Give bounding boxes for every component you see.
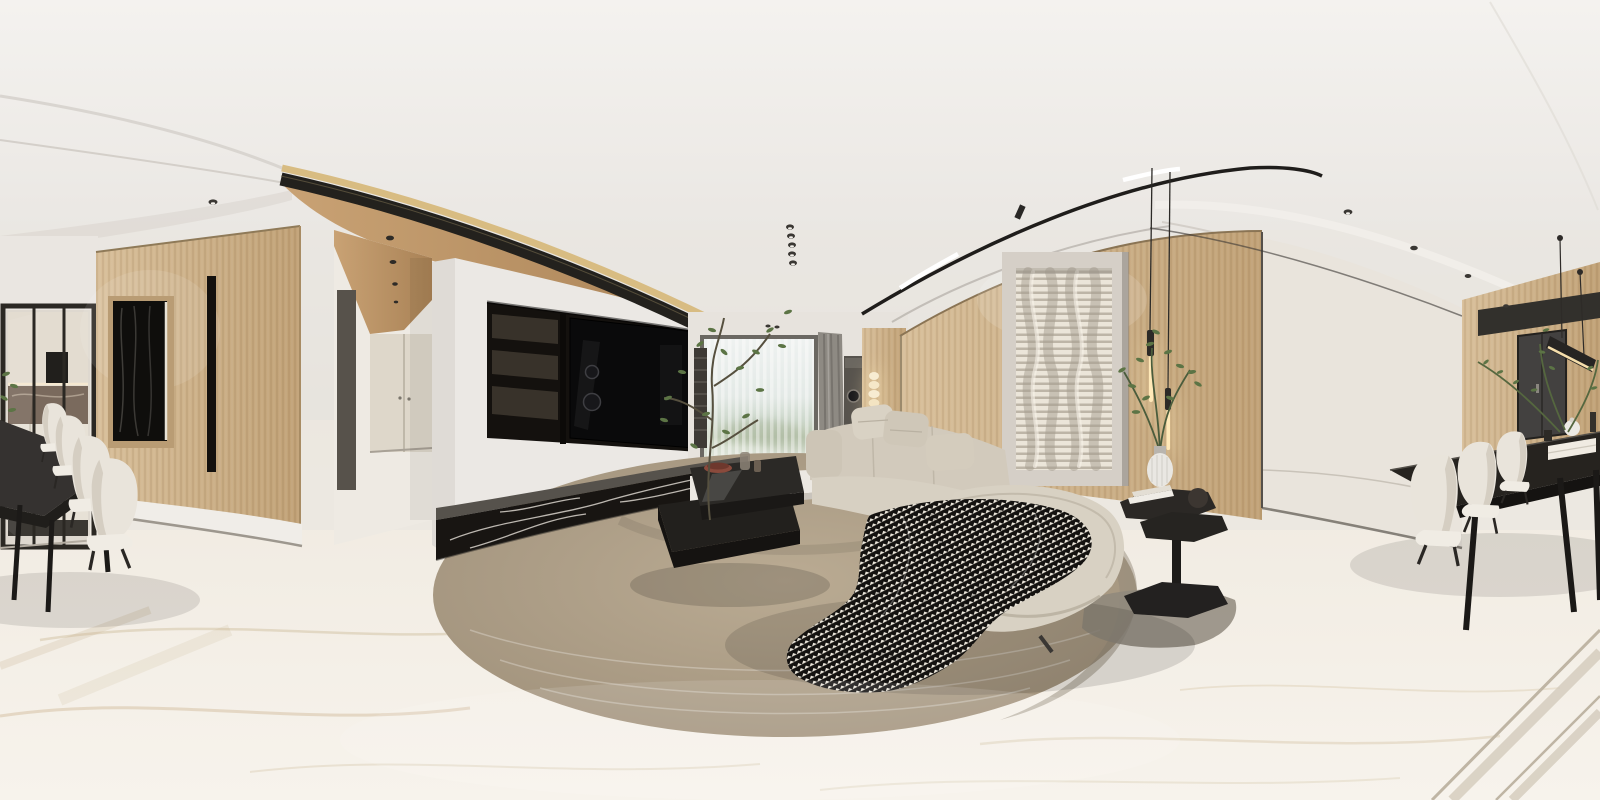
wavy-acoustic-art [1002, 252, 1129, 486]
hallway-corridor [334, 230, 432, 545]
radiator-screen [694, 348, 707, 448]
washer-reflection [586, 366, 599, 379]
sheer-curtain [704, 339, 814, 468]
floor-sheen [340, 680, 1180, 800]
panorama-360-living-room: 360-degree living and dining room panora… [0, 0, 1600, 800]
black-abstract-art [113, 301, 167, 441]
tv-screen [570, 318, 694, 448]
hall-dark-panel [337, 290, 356, 490]
decor-sphere [1188, 488, 1208, 508]
wall-slot [207, 276, 216, 472]
panorama-canvas: 360-degree living and dining room panora… [0, 0, 1600, 800]
sofa-armrest [806, 430, 842, 478]
